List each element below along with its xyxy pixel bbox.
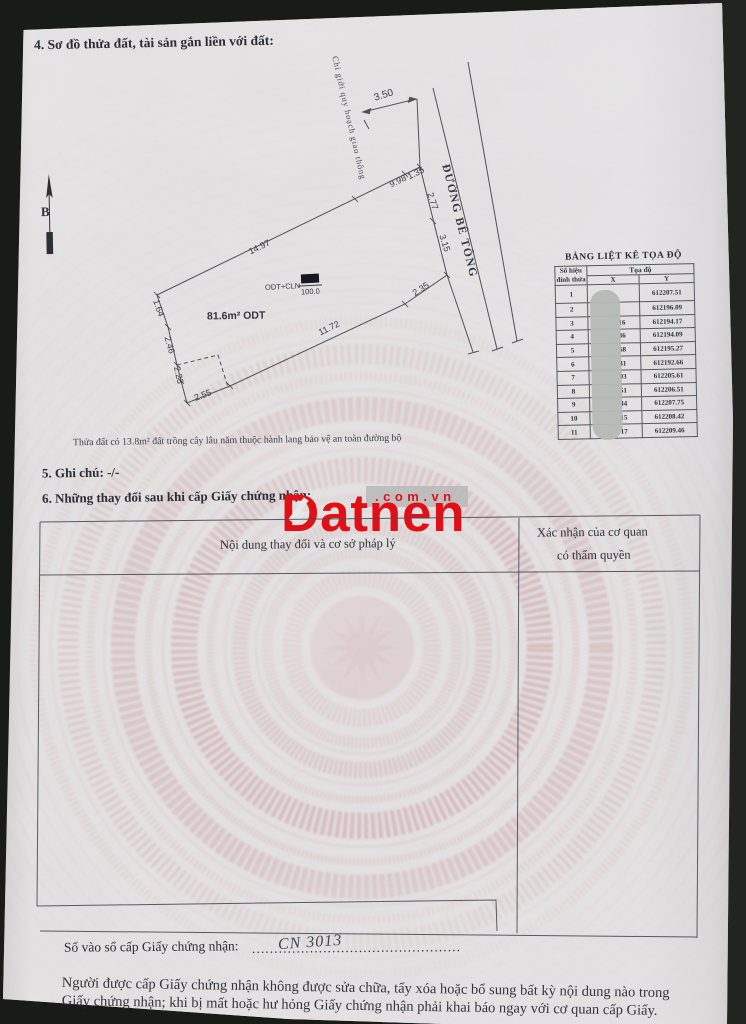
svg-text:B: B: [41, 204, 50, 219]
